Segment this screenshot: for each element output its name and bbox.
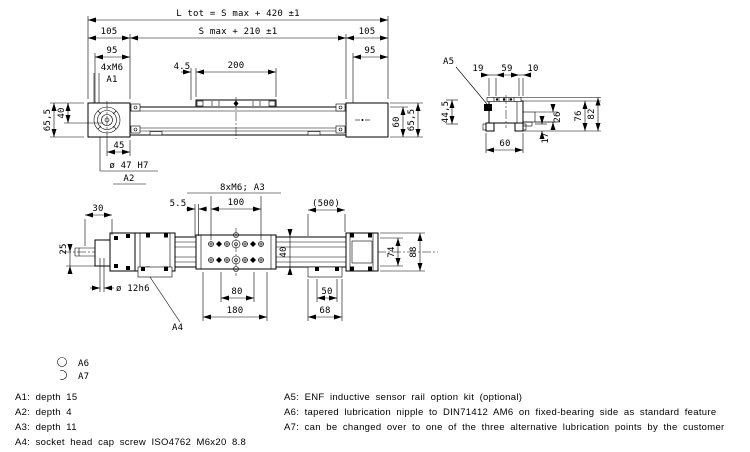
dim-105-left: 105 — [101, 27, 118, 37]
dim-74: 74 — [387, 246, 397, 257]
legend-a6-label: A6 — [78, 359, 89, 369]
linear-unit-dimension-drawing: L tot = S max + 420 ±1 105 S max + 210 ±… — [0, 0, 750, 452]
dim-65-5-right: 65,5 — [407, 109, 417, 131]
dim-100: 100 — [228, 198, 245, 208]
note-a7: A7: can be changed over to one of the th… — [284, 422, 725, 433]
dim-82: 82 — [587, 108, 597, 119]
dim-40-side: 40 — [57, 107, 67, 118]
note-a4: A4: socket head cap screw ISO4762 M6x20 … — [15, 437, 246, 448]
dim-26: 26 — [553, 111, 563, 122]
dim-10: 10 — [527, 64, 538, 74]
dim-95-right: 95 — [364, 46, 375, 56]
callout-4xm6: 4xM6 — [101, 63, 123, 73]
dim-65-5-left: 65,5 — [43, 109, 53, 131]
dim-59: 59 — [501, 64, 512, 74]
sensor-head — [484, 104, 492, 111]
dim-80: 80 — [231, 287, 242, 297]
dim-40-plan: 40 — [279, 246, 289, 257]
dim-180: 180 — [227, 306, 244, 316]
dim-500-ref: (500) — [312, 199, 340, 209]
ref-a1: A1 — [106, 75, 117, 85]
dim-200: 200 — [228, 61, 245, 71]
ref-a2: A2 — [123, 174, 134, 184]
dim-68: 68 — [319, 306, 330, 316]
dim-60-side: 60 — [392, 116, 402, 127]
dim-s-max: S max + 210 ±1 — [199, 27, 278, 37]
dim-30: 30 — [92, 204, 103, 214]
dim-17: 17 — [541, 132, 551, 143]
dim-shaft-12h6: ø 12h6 — [116, 284, 150, 294]
note-a2: A2: depth 4 — [15, 407, 72, 418]
note-a5: A5: ENF inductive sensor rail option kit… — [284, 392, 522, 403]
dim-44-5: 44,5 — [441, 101, 451, 123]
dim-95-left: 95 — [106, 46, 117, 56]
dim-105-right: 105 — [359, 27, 376, 37]
dim-25: 25 — [59, 243, 69, 254]
dim-76: 76 — [574, 110, 584, 121]
dim-5-5: 5.5 — [170, 199, 187, 209]
dim-bore-47h7: ø 47 H7 — [109, 161, 148, 171]
dim-19: 19 — [472, 64, 483, 74]
legend-a7-label: A7 — [78, 372, 89, 382]
dim-88: 88 — [409, 246, 419, 257]
dim-50: 50 — [321, 287, 332, 297]
dim-4-5: 4.5 — [174, 62, 191, 72]
dim-60-bottom: 60 — [499, 139, 510, 149]
dim-l-tot: L tot = S max + 420 ±1 — [176, 9, 300, 19]
callout-8xm6-a3: 8xM6; A3 — [220, 183, 265, 193]
note-a3: A3: depth 11 — [15, 422, 77, 433]
ref-a4: A4 — [172, 323, 183, 333]
note-a1: A1: depth 15 — [15, 392, 77, 403]
ref-a5: A5 — [443, 57, 454, 67]
note-a6: A6: tapered lubrication nipple to DIN714… — [284, 407, 716, 418]
dim-45: 45 — [113, 141, 124, 151]
technical-drawing-page: L tot = S max + 420 ±1 105 S max + 210 ±… — [0, 0, 750, 452]
